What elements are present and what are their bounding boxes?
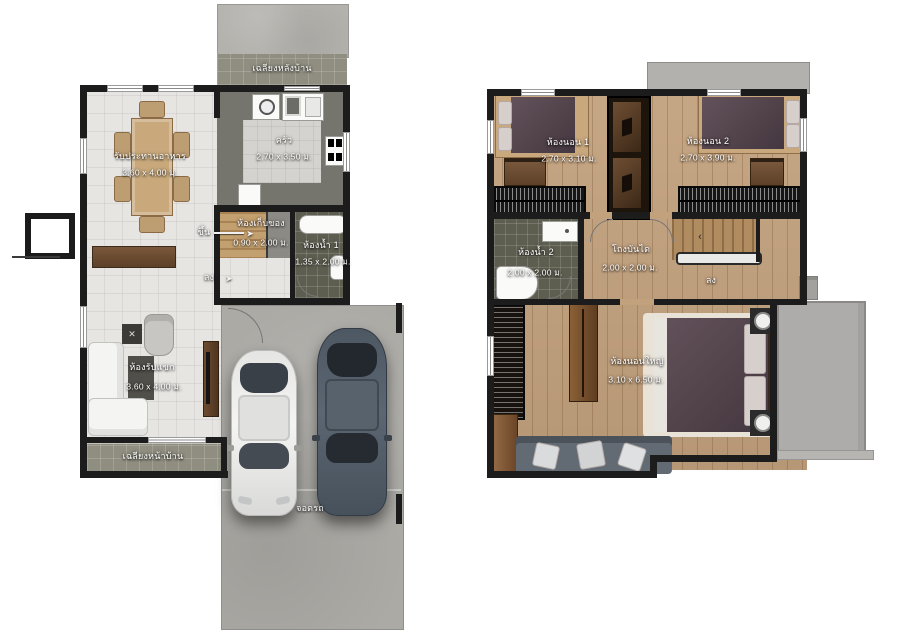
f2-wall-master-right	[770, 304, 777, 462]
bathroom2-sink	[542, 221, 578, 242]
bedroom-divider-closet	[607, 96, 651, 220]
bedroom1-dresser	[504, 158, 546, 186]
master-bedroom-dims: 3.10 x 6.50 ม.	[608, 375, 663, 384]
f1-window	[284, 86, 320, 91]
bedroom1-label: ห้องนอน 1	[547, 138, 590, 148]
f2-wall-bath-right	[578, 219, 584, 305]
stair-hall-dims: 2.00 x 2.00 ม.	[602, 263, 657, 272]
bedroom2-dresser	[750, 158, 784, 186]
balcony	[777, 301, 866, 456]
car-mirror	[384, 435, 392, 441]
f2-window	[800, 118, 807, 152]
closet-door-panel	[613, 102, 641, 152]
dining-chair	[139, 216, 165, 233]
floor2-plan: ‹	[455, 0, 909, 640]
bathroom2-label: ห้องน้ำ 2	[518, 248, 554, 258]
bedroom2-label: ห้องนอน 2	[687, 137, 730, 147]
dimension-tick	[12, 256, 60, 258]
side-table: ✕	[122, 324, 142, 344]
back-porch-concrete	[217, 4, 349, 58]
bedroom1-pillow	[498, 127, 512, 151]
dining-room-label: รับประทานอาหาร	[114, 152, 186, 162]
kitchen-label: ครัว	[276, 136, 293, 146]
bedroom1-dims: 2.70 x 3.10 ม.	[541, 154, 596, 163]
car-dark	[317, 328, 387, 516]
car-rear-glass	[327, 343, 377, 377]
f1-wall-right	[343, 85, 350, 305]
balcony-ledge	[777, 450, 874, 460]
sink-drain-dot	[565, 229, 569, 233]
car-mirror	[312, 435, 320, 441]
bathroom1-dims: 1.35 x 2.00 ม.	[295, 257, 350, 266]
f1-sliding-door	[148, 437, 206, 443]
f2-door-gap	[590, 212, 612, 219]
floorplan-canvas: ✕	[0, 0, 909, 640]
f2-window	[487, 120, 494, 154]
closet-handle	[622, 173, 632, 192]
tv-screen	[206, 352, 210, 404]
back-porch-label: เฉลียงหลังบ้าน	[252, 64, 311, 74]
sink-basin	[285, 96, 301, 116]
wardrobe-shelf-line	[496, 200, 584, 202]
f2-wall-bath-bottom	[487, 299, 584, 305]
car-roof	[238, 395, 290, 441]
living-room-label: ห้องรับแขก	[129, 363, 174, 373]
stairs-direction-arrow-icon: ‹	[698, 231, 702, 243]
closet-door-panel	[613, 158, 641, 208]
master-closet	[569, 304, 598, 402]
f2-door-gap	[650, 212, 672, 219]
bedroom2-pillow	[786, 124, 800, 148]
sofa-pillow	[532, 442, 560, 470]
storage-label: ห้องเก็บของ	[237, 219, 285, 229]
car-headlight	[275, 496, 290, 506]
front-porch-label: เฉลียงหน้าบ้าน	[123, 452, 184, 462]
kitchen-dims: 2.70 x 3.50 ม.	[256, 152, 311, 161]
stove-burner-icon	[259, 99, 275, 115]
car-white	[231, 350, 297, 516]
car-windshield	[326, 433, 378, 463]
closet-center-line	[582, 309, 584, 397]
f1-window	[80, 306, 87, 348]
stairs-up-label: ขึ้น	[198, 228, 211, 238]
garage-wall-stub	[396, 303, 402, 333]
dining-chair	[173, 176, 190, 202]
living-room-dims: 3.60 x 4.00 ม.	[126, 382, 181, 391]
bedroom2-pillow	[786, 100, 800, 124]
master-wardrobe	[491, 304, 525, 420]
dining-chair	[139, 101, 165, 118]
f1-window	[80, 138, 87, 174]
armchair	[144, 314, 174, 356]
wardrobe-shelf-line	[680, 200, 802, 202]
sofa-pillow	[617, 442, 647, 472]
bathroom1-label: ห้องน้ำ 1	[303, 241, 339, 251]
closet-handle	[622, 117, 632, 136]
f1-window	[343, 132, 350, 172]
car-mirror	[294, 445, 302, 451]
car-windshield	[239, 443, 289, 469]
sink-drainer	[305, 97, 321, 117]
bathroom2-dims: 2.00 x 2.00 ม.	[507, 268, 562, 277]
f2-stair-edge	[756, 216, 760, 262]
f2-window	[487, 336, 494, 376]
stair-hall-label: โถงบันได	[612, 245, 650, 255]
sofa-l-foot	[88, 398, 148, 436]
f2-door-gap	[620, 299, 654, 305]
master-sofa	[516, 436, 672, 474]
bedroom1-pillow	[498, 101, 512, 125]
garage-wall-stub	[396, 494, 402, 524]
f1-wall-bath-left	[290, 212, 295, 298]
storage-dims: 0.90 x 2.00 ม.	[233, 238, 288, 247]
garage-label: จอดรถ	[296, 504, 324, 514]
sideboard	[92, 246, 176, 268]
down-arrow-icon: ➤	[225, 274, 233, 285]
dining-chair	[114, 176, 131, 202]
f1-window	[107, 85, 143, 92]
stairs-up-line	[214, 232, 244, 234]
master-bedroom-label: ห้องนอนใหญ่	[610, 357, 663, 367]
sofa-pillow	[576, 440, 606, 470]
bathtub1	[299, 215, 347, 234]
dining-room-dims: 3.60 x 4.00 ม.	[122, 168, 177, 177]
f2-wall-master-bottom-right	[650, 455, 777, 462]
f1-wall-garage-top	[214, 298, 350, 305]
f1-window	[158, 85, 194, 92]
car-roof	[325, 379, 379, 431]
f1-wall-porch-bottom	[80, 471, 228, 478]
f2-window	[521, 89, 555, 96]
car-rear-glass	[240, 363, 288, 393]
stairs-down-label-f2: ลง	[706, 276, 716, 286]
stairs-down-label: ลง	[204, 273, 214, 283]
f2-wall-master-bottom-left	[487, 471, 657, 478]
stair-railing	[676, 252, 762, 265]
floor1-plan: ✕	[0, 0, 455, 640]
car-mirror	[226, 445, 234, 451]
f2-window	[707, 89, 741, 96]
f1-wall-storage-top	[214, 205, 350, 212]
burner-grid	[328, 139, 342, 161]
f1-wall-mid-vertical	[214, 205, 220, 305]
exterior-planter-box	[25, 213, 75, 259]
f1-wall-kitchen-stub	[214, 85, 220, 118]
bedroom2-dims: 2.70 x 3.90 ม.	[680, 153, 735, 162]
car-headlight	[237, 496, 252, 506]
